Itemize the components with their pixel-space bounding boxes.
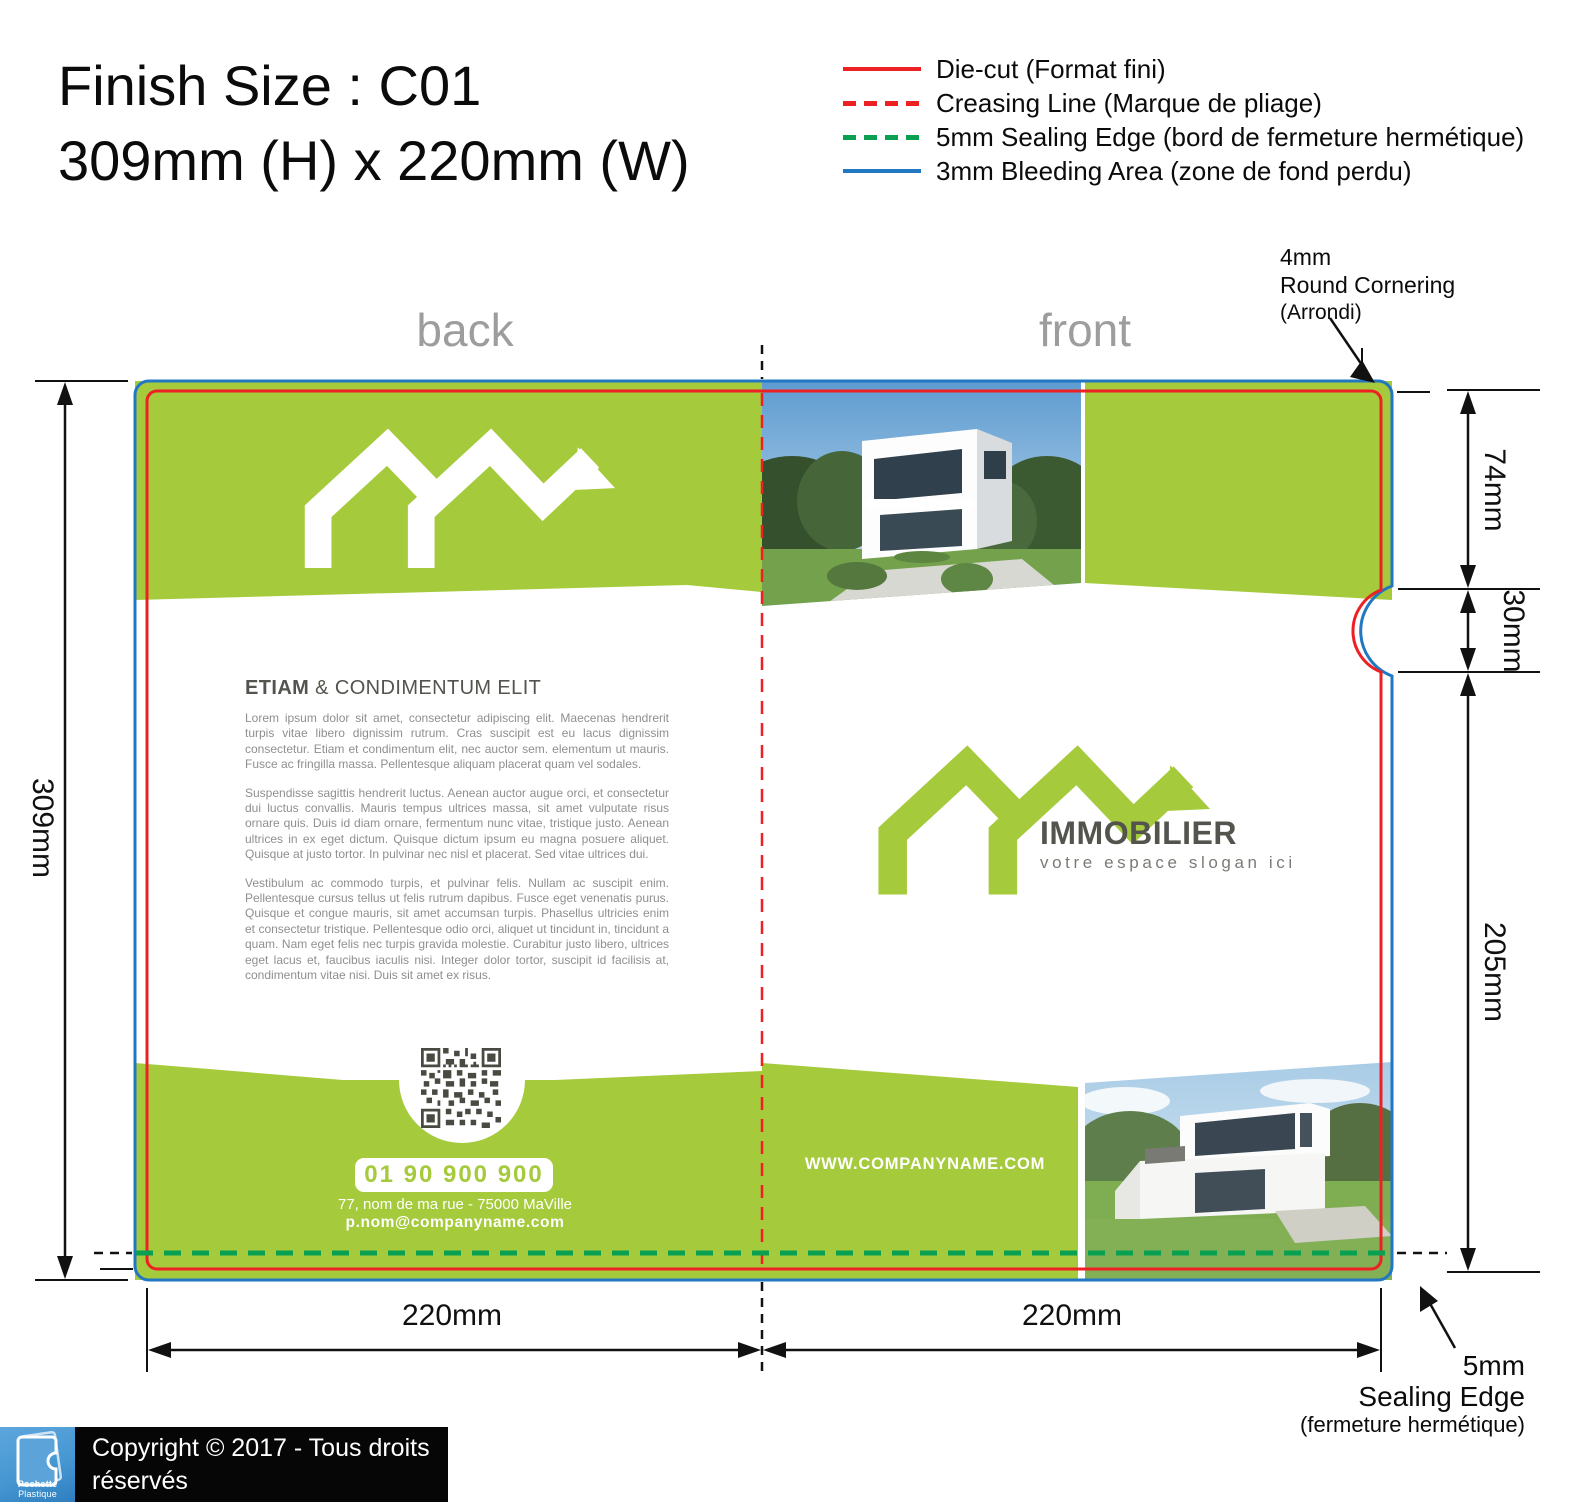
sealing-edge-line1: 5mm [1300,1350,1525,1381]
copyright-bar: Copyright © 2017 - Tous droits réservés … [75,1427,448,1502]
footer-logo-rest: Plastique [18,1489,57,1499]
round-cornering-line2: Round Cornering [1280,271,1455,299]
house-photo-top [762,381,1081,607]
email: p.nom@companyname.com [255,1214,655,1232]
dim-top-section: 74mm [1477,448,1511,531]
round-cornering-line1: 4mm [1280,243,1455,271]
back-heading: ETIAM & CONDIMENTUM ELIT [245,677,541,700]
copyright-line1: Copyright © 2017 - Tous droits réservés [92,1432,448,1498]
website-url: WWW.COMPANYNAME.COM [765,1155,1085,1174]
copyright-line2: Pochette Plastique Personnalisée Couleur [92,1498,448,1502]
back-top-band [135,381,762,607]
address: 77, nom de ma rue - 75000 MaVille [255,1196,655,1213]
dim-notch-section: 30mm [1496,589,1530,672]
round-cornering-line3: (Arrondi) [1280,299,1455,327]
legend-label: 5mm Sealing Edge (bord de fermeture herm… [936,122,1524,153]
phone-number: 01 90 900 900 [355,1158,553,1192]
finish-size-line1: Finish Size : C01 [58,48,690,123]
brand-slogan: votre espace slogan ici [1040,853,1296,873]
back-panel-label: back [416,303,513,357]
dim-back-width: 220mm [402,1299,502,1333]
legend-label: Creasing Line (Marque de pliage) [936,88,1322,119]
dim-total-height: 309mm [25,778,59,878]
house-logo-icon [295,417,615,568]
die-cut-line-swatch [843,67,921,71]
legend-label: Die-cut (Format fini) [936,54,1166,85]
legend-item-creasing: Creasing Line (Marque de pliage) [843,86,1524,120]
finish-size-line2: 309mm (H) x 220mm (W) [58,123,690,198]
back-heading-bold: ETIAM [245,677,309,699]
sealing-edge-arrow [1428,1300,1455,1348]
front-top-band [1085,381,1392,603]
sealing-edge-note: 5mm Sealing Edge (fermeture hermétique) [1300,1350,1525,1438]
brand-name: IMMOBILIER [1040,815,1237,852]
legend: Die-cut (Format fini) Creasing Line (Mar… [843,52,1524,188]
sealing-edge-swatch [843,135,921,140]
footer-logo-bold: Pochette [18,1479,58,1489]
dim-front-width: 220mm [1022,1299,1122,1333]
legend-item-sealing: 5mm Sealing Edge (bord de fermeture herm… [843,120,1524,154]
front-panel-label: front [1039,303,1131,357]
legend-label: 3mm Bleeding Area (zone de fond perdu) [936,156,1412,187]
page: Finish Size : C01 309mm (H) x 220mm (W) … [0,0,1587,1502]
pocket-artwork: ETIAM & CONDIMENTUM ELIT Lorem ipsum dol… [135,381,1392,1280]
sealing-edge-line3: (fermeture hermétique) [1300,1412,1525,1438]
sealing-edge-line2: Sealing Edge [1300,1381,1525,1412]
finish-size-title: Finish Size : C01 309mm (H) x 220mm (W) [58,48,690,198]
bleeding-area-swatch [843,169,921,173]
dim-pocket-section: 205mm [1477,922,1511,1022]
pochette-plastique-logo: Pochette Plastique [0,1427,75,1502]
legend-item-die-cut: Die-cut (Format fini) [843,52,1524,86]
footer-logo-caption: Pochette Plastique [0,1479,75,1499]
paragraph: Vestibulum ac commodo turpis, et pulvina… [245,876,669,984]
legend-item-bleeding: 3mm Bleeding Area (zone de fond perdu) [843,154,1524,188]
paragraph: Lorem ipsum dolor sit amet, consectetur … [245,711,669,773]
back-heading-rest: & CONDIMENTUM ELIT [309,677,541,699]
paragraph: Suspendisse sagittis hendrerit luctus. A… [245,786,669,863]
house-photo-bottom [1085,1061,1392,1280]
back-body-text: Lorem ipsum dolor sit amet, consectetur … [245,711,669,997]
qr-code [421,1048,501,1128]
creasing-line-swatch [843,101,921,106]
round-cornering-note: 4mm Round Cornering (Arrondi) [1280,243,1455,327]
